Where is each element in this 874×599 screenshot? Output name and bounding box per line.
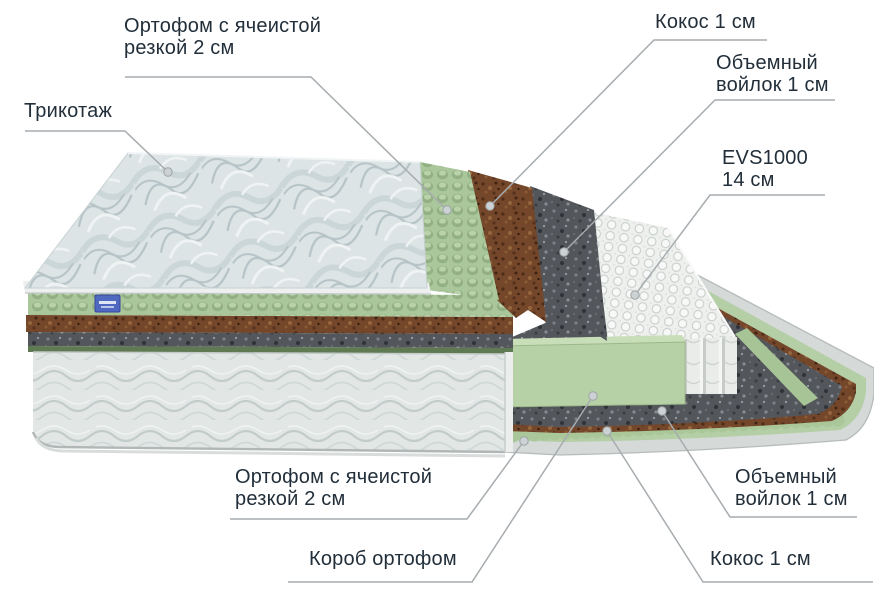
label-trikotazh: Трикотаж	[24, 100, 112, 122]
coir-front-edge	[26, 315, 513, 334]
label-line: Кокос 1 см	[710, 548, 811, 570]
label-voilok-top: Объемный войлок 1 см	[716, 52, 829, 96]
label-line: Объемный	[735, 466, 848, 488]
label-line: войлок 1 см	[735, 488, 848, 510]
label-korob: Короб ортофом	[309, 548, 457, 570]
label-voilok-bottom: Объемный войлок 1 см	[735, 466, 848, 510]
knit-topper-layer	[23, 153, 431, 294]
label-line: Ортофом с ячеистой	[235, 466, 432, 488]
label-ortofom-bottom: Ортофом с ячеистой резкой 2 см	[235, 466, 432, 510]
label-ortofom-top: Ортофом с ячеистой резкой 2 см	[124, 15, 321, 59]
felt-front-edge	[28, 332, 513, 348]
base-body	[33, 352, 513, 456]
label-line: Ортофом с ячеистой	[124, 15, 321, 37]
front-edge-bands	[26, 293, 513, 354]
mattress-layers-diagram: { "diagram": { "type": "mattress-layers-…	[0, 0, 874, 599]
label-line: резкой 2 см	[235, 488, 432, 510]
label-kokos-bottom: Кокос 1 см	[710, 548, 811, 570]
label-kokos-top: Кокос 1 см	[655, 11, 756, 33]
label-line: Объемный	[716, 52, 829, 74]
label-evs: EVS1000 14 см	[722, 147, 808, 191]
brand-tag	[95, 295, 120, 312]
label-line: EVS1000	[722, 147, 808, 169]
label-line: резкой 2 см	[124, 37, 321, 59]
label-line: Короб ортофом	[309, 548, 457, 570]
label-line: Трикотаж	[24, 100, 112, 122]
label-line: Кокос 1 см	[655, 11, 756, 33]
label-line: войлок 1 см	[716, 74, 829, 96]
label-line: 14 см	[722, 169, 808, 191]
